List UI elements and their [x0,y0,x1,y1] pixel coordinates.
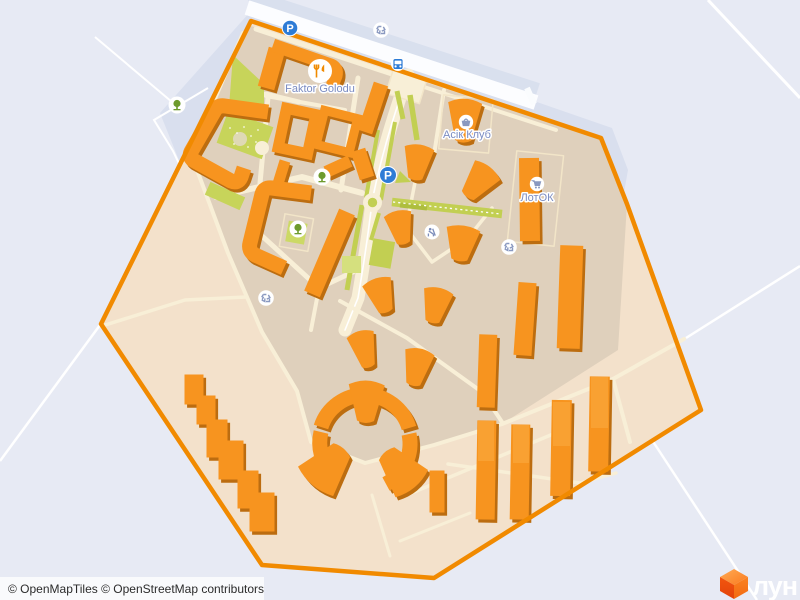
svg-text:© OpenMapTiles © OpenStreetMap: © OpenMapTiles © OpenStreetMap contribut… [8,582,264,596]
svg-text:P: P [286,23,293,35]
svg-text:лун: лун [752,571,797,600]
svg-text:Faktor Golodu: Faktor Golodu [285,83,355,95]
svg-text:Асік Клуб: Асік Клуб [443,129,491,141]
svg-text:P: P [384,168,392,182]
svg-text:ЛотОК: ЛотОК [520,192,554,204]
